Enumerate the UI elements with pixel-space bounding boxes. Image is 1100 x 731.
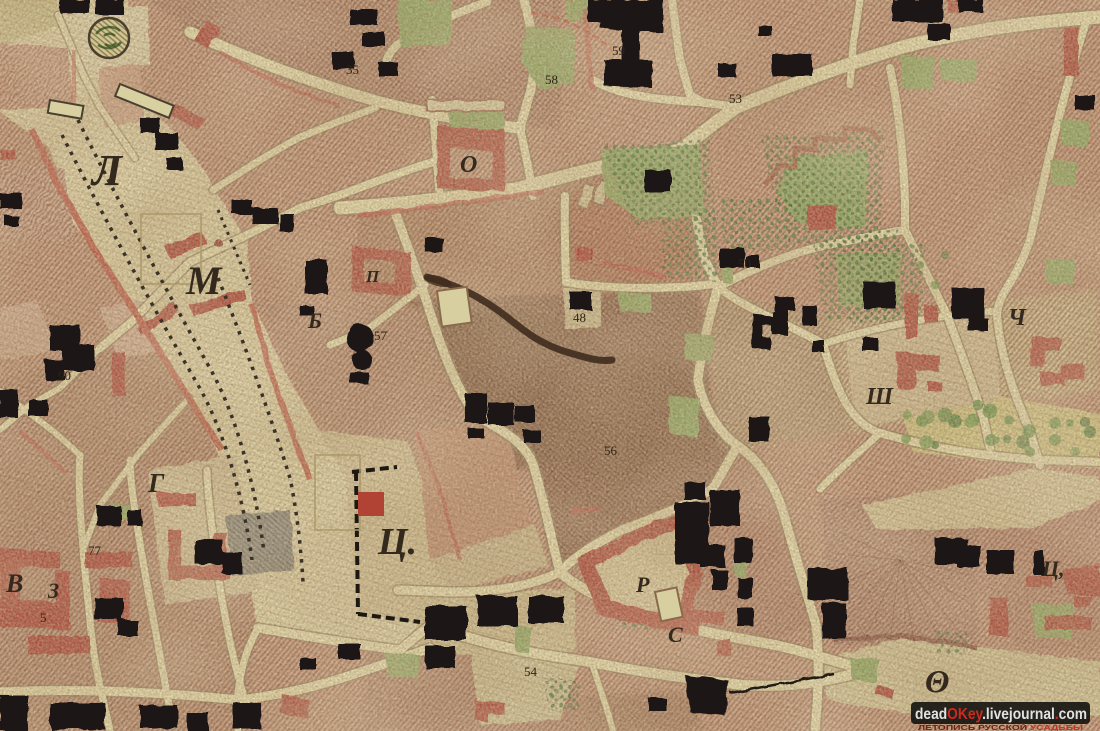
- svg-text:59: 59: [612, 43, 625, 58]
- svg-text:Ц.: Ц.: [377, 521, 417, 563]
- svg-text:Ч: Ч: [1008, 305, 1027, 331]
- svg-text:Θ: Θ: [925, 663, 949, 699]
- svg-text:Г: Г: [147, 468, 165, 498]
- svg-text:О: О: [460, 152, 477, 178]
- svg-text:Р: Р: [635, 572, 650, 597]
- svg-text:ЛЕТОПИСЬ РУССКОЙ УСАДЬБЫ: ЛЕТОПИСЬ РУССКОЙ УСАДЬБЫ: [918, 723, 1083, 731]
- svg-text:Ц,: Ц,: [1041, 556, 1065, 581]
- svg-text:53: 53: [729, 91, 742, 106]
- svg-text:57: 57: [374, 328, 388, 343]
- svg-text:Ш: Ш: [865, 384, 894, 410]
- svg-text:С: С: [668, 622, 683, 647]
- svg-text:58: 58: [545, 72, 558, 87]
- svg-text:90: 90: [58, 368, 71, 383]
- svg-text:77: 77: [88, 543, 102, 558]
- svg-text:М: М: [185, 258, 223, 303]
- svg-text:Л: Л: [90, 146, 124, 195]
- svg-text:П: П: [365, 267, 380, 286]
- svg-text:Б: Б: [307, 308, 322, 333]
- svg-text:54: 54: [524, 664, 538, 679]
- svg-text:5: 5: [40, 610, 47, 625]
- svg-text:35: 35: [346, 62, 359, 77]
- svg-text:deadOKey.livejournal.com: deadOKey.livejournal.com: [915, 706, 1087, 723]
- svg-text:48: 48: [573, 310, 586, 325]
- svg-text:50: 50: [738, 256, 751, 271]
- svg-text:В: В: [5, 569, 23, 598]
- svg-text:56: 56: [604, 443, 618, 458]
- svg-text:З: З: [47, 578, 59, 603]
